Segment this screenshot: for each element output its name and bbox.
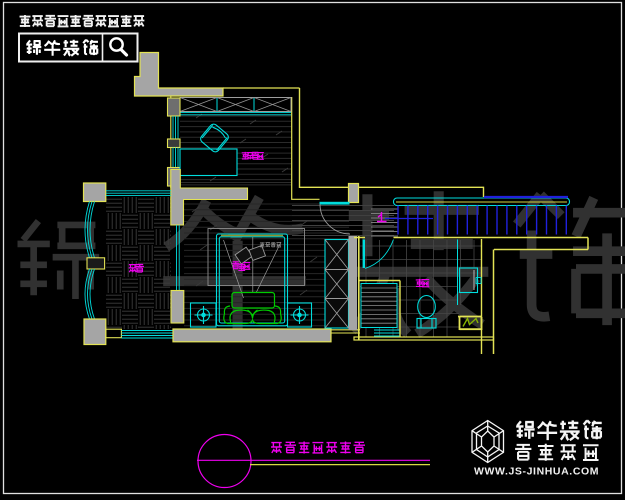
svg-text:WWW.JS-JINHUA.COM: WWW.JS-JINHUA.COM — [474, 466, 599, 478]
